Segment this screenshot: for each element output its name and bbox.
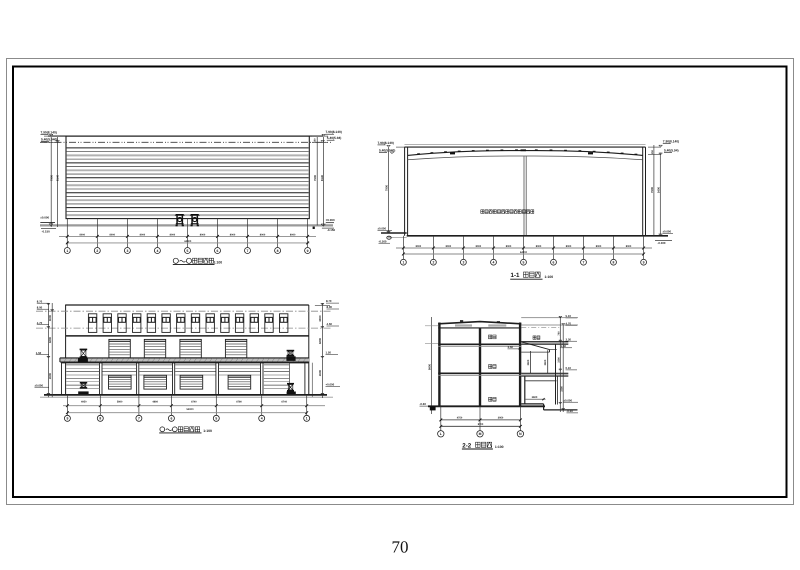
svg-text:M: M	[479, 432, 482, 436]
svg-text:5: 5	[187, 249, 189, 253]
svg-text:6780: 6780	[236, 401, 242, 404]
svg-text:6: 6	[217, 249, 219, 253]
svg-text:2600: 2600	[544, 359, 547, 365]
svg-text:54000: 54000	[187, 408, 195, 411]
svg-text:1:100: 1:100	[214, 260, 223, 264]
svg-text:7900: 7900	[385, 184, 389, 191]
svg-text:+0.000: +0.000	[326, 382, 335, 386]
svg-text:3.50: 3.50	[508, 345, 514, 349]
svg-text:2: 2	[96, 249, 98, 253]
svg-text:1:100: 1:100	[203, 429, 212, 433]
svg-text:-0.300: -0.300	[379, 239, 387, 243]
svg-text:3200: 3200	[48, 336, 52, 343]
svg-text:3300: 3300	[560, 386, 563, 392]
svg-text:8.70: 8.70	[326, 299, 332, 303]
svg-text:4.50: 4.50	[327, 322, 333, 326]
svg-text:7900: 7900	[313, 174, 317, 181]
svg-text:8000: 8000	[626, 245, 632, 248]
svg-text:7: 7	[247, 249, 249, 253]
svg-text:-0.150: -0.150	[42, 230, 51, 234]
svg-text:1.50: 1.50	[326, 351, 332, 355]
svg-text:7900: 7900	[650, 186, 654, 193]
svg-text:8: 8	[277, 249, 279, 253]
svg-text:±0.000: ±0.000	[40, 215, 49, 219]
svg-text:790: 790	[557, 331, 560, 336]
svg-text:5800: 5800	[117, 401, 123, 404]
svg-text:8000: 8000	[536, 245, 542, 248]
svg-text:8.00: 8.00	[37, 305, 43, 309]
svg-text:±0.000: ±0.000	[35, 383, 44, 387]
svg-text:L: L	[440, 432, 442, 436]
svg-text:7.90(8.140): 7.90(8.140)	[663, 140, 679, 144]
svg-text:0.10: 0.10	[566, 366, 572, 370]
svg-text:6740: 6740	[281, 401, 287, 404]
svg-text:3: 3	[462, 261, 464, 265]
svg-text:3200: 3200	[318, 337, 322, 344]
svg-text:±0.000: ±0.000	[326, 218, 335, 222]
svg-text:4500: 4500	[48, 372, 52, 379]
svg-text:8000: 8000	[506, 245, 512, 248]
svg-text:2-2: 2-2	[462, 442, 472, 449]
svg-text:8140: 8140	[320, 174, 324, 181]
svg-text:3.30: 3.30	[566, 337, 572, 341]
svg-text:150: 150	[651, 150, 654, 155]
svg-text:64000: 64000	[184, 240, 192, 243]
svg-text:64000: 64000	[520, 251, 528, 254]
svg-text:1.50: 1.50	[36, 351, 42, 355]
svg-text:±0.000: ±0.000	[378, 227, 387, 231]
svg-text:4: 4	[493, 261, 495, 265]
svg-text:8000: 8000	[260, 233, 266, 236]
svg-text:4950: 4950	[81, 401, 87, 404]
svg-text:2: 2	[432, 261, 434, 265]
svg-text:2600: 2600	[527, 359, 530, 365]
svg-text:1:100: 1:100	[495, 445, 504, 449]
svg-text:7900: 7900	[49, 174, 53, 181]
svg-text:1: 1	[66, 249, 68, 253]
svg-text:8000: 8000	[446, 245, 452, 248]
svg-text:4750: 4750	[457, 417, 463, 420]
svg-text:5.40(5.94): 5.40(5.94)	[327, 136, 342, 140]
svg-text:3300: 3300	[557, 357, 560, 363]
svg-text:4500: 4500	[318, 369, 322, 376]
svg-text:4.70: 4.70	[37, 321, 43, 325]
svg-text:8000: 8000	[80, 233, 86, 236]
svg-text:-0.60: -0.60	[420, 402, 427, 406]
svg-text:7.90(8.140): 7.90(8.140)	[378, 141, 394, 145]
svg-text:4.70: 4.70	[566, 321, 572, 325]
svg-text:8000: 8000	[476, 245, 482, 248]
svg-text:8000: 8000	[170, 233, 176, 236]
svg-text:1:100: 1:100	[545, 275, 554, 279]
svg-text:3950: 3950	[498, 417, 504, 420]
svg-text:8000: 8000	[140, 233, 146, 236]
svg-text:6: 6	[553, 261, 555, 265]
svg-text:8: 8	[613, 261, 615, 265]
svg-text:8000: 8000	[596, 245, 602, 248]
svg-text:1: 1	[306, 417, 308, 421]
svg-text:7.90(8.140): 7.90(8.140)	[326, 130, 342, 134]
svg-text:8: 8	[99, 417, 101, 421]
svg-text:4880: 4880	[152, 401, 158, 404]
svg-text:7: 7	[138, 417, 140, 421]
svg-text:±0.000: ±0.000	[663, 230, 672, 234]
svg-text:8700: 8700	[478, 423, 484, 426]
svg-text:3000: 3000	[318, 315, 322, 322]
svg-text:4: 4	[261, 417, 263, 421]
svg-text:5.10: 5.10	[566, 314, 572, 318]
svg-text:9: 9	[307, 249, 309, 253]
svg-text:5: 5	[215, 417, 217, 421]
svg-text:-0.150: -0.150	[327, 228, 336, 232]
svg-text:5400: 5400	[657, 186, 661, 193]
svg-text:8000: 8000	[566, 245, 572, 248]
svg-text:1-1: 1-1	[511, 272, 521, 279]
svg-text:8000: 8000	[200, 233, 206, 236]
svg-text:9: 9	[66, 417, 68, 421]
svg-text:±0.000: ±0.000	[564, 398, 573, 402]
svg-text:3600: 3600	[532, 396, 538, 399]
svg-text:8.70: 8.70	[37, 299, 43, 303]
svg-text:-0.60: -0.60	[567, 409, 574, 413]
svg-text:8.00: 8.00	[327, 305, 333, 309]
svg-text:7.90(8.140): 7.90(8.140)	[41, 131, 57, 135]
svg-text:8000: 8000	[290, 233, 296, 236]
svg-text:8140: 8140	[56, 174, 60, 181]
svg-text:9900: 9900	[428, 363, 432, 370]
svg-text:8000: 8000	[110, 233, 116, 236]
svg-text:5.40(5.940): 5.40(5.940)	[41, 137, 57, 141]
svg-text:3: 3	[126, 249, 128, 253]
svg-text:150: 150	[314, 138, 317, 143]
svg-text:6: 6	[170, 417, 172, 421]
svg-text:7: 7	[583, 261, 585, 265]
svg-text:8000: 8000	[230, 233, 236, 236]
svg-text:5.40(5.94): 5.40(5.94)	[664, 148, 679, 152]
svg-text:4: 4	[156, 249, 158, 253]
svg-text:1: 1	[402, 261, 404, 265]
svg-text:9: 9	[643, 261, 645, 265]
svg-text:-0.300: -0.300	[658, 241, 666, 245]
svg-text:3000: 3000	[48, 314, 52, 321]
svg-text:6740: 6740	[191, 401, 197, 404]
svg-text:8000: 8000	[416, 245, 422, 248]
svg-text:5: 5	[523, 261, 525, 265]
svg-text:1.50: 1.50	[561, 344, 567, 348]
svg-text:70: 70	[392, 538, 409, 557]
